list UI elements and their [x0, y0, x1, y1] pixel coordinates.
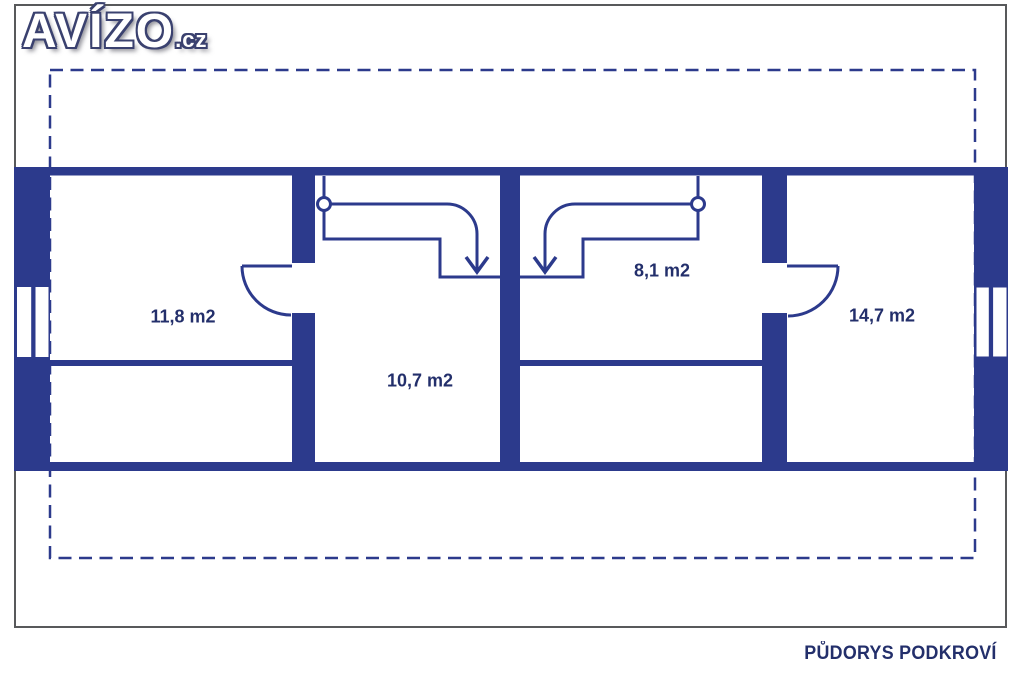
floorplan-drawing	[0, 0, 1024, 683]
interior-wall-horizontal-left	[50, 360, 292, 366]
room-label-14-7: 14,7 m2	[849, 306, 915, 327]
avizo-logo-tld: .cz	[175, 27, 207, 52]
room-label-10-7: 10,7 m2	[387, 371, 453, 392]
room-label-11-8: 11,8 m2	[150, 307, 215, 328]
staircase-left	[318, 176, 501, 277]
staircase-left-step-edge	[324, 176, 500, 277]
room-label-8-1: 8,1 m2	[634, 261, 690, 282]
staircase-left-walkline	[330, 204, 477, 270]
door-right-swing-arc	[788, 266, 838, 316]
staircase-left-start-circle	[318, 198, 331, 211]
window-right	[977, 288, 1007, 357]
door-left-swing-arc	[242, 266, 291, 315]
window-right-mullion	[989, 288, 993, 357]
window-left	[17, 287, 49, 357]
floorplan-page: AVÍZO.cz 11,8 m2 10,7 m2 8,1 m2 14,7 m2 …	[0, 0, 1024, 683]
window-left-mullion	[31, 287, 35, 357]
plan-title: PŮDORYS PODKROVÍ	[805, 643, 997, 665]
interior-wall-middle	[500, 167, 520, 471]
interior-wall-a-lower	[292, 313, 315, 471]
avizo-logo-text: AVÍZO	[22, 5, 175, 58]
door-left-room	[242, 266, 292, 315]
interior-wall-horizontal-right	[520, 360, 762, 366]
interior-wall-a-upper	[292, 167, 315, 263]
avizo-logo: AVÍZO.cz	[22, 8, 207, 56]
staircase-right-start-circle	[692, 198, 705, 211]
interior-wall-b-lower	[762, 313, 787, 471]
door-right-room	[787, 266, 838, 316]
interior-wall-b-upper	[762, 167, 787, 263]
